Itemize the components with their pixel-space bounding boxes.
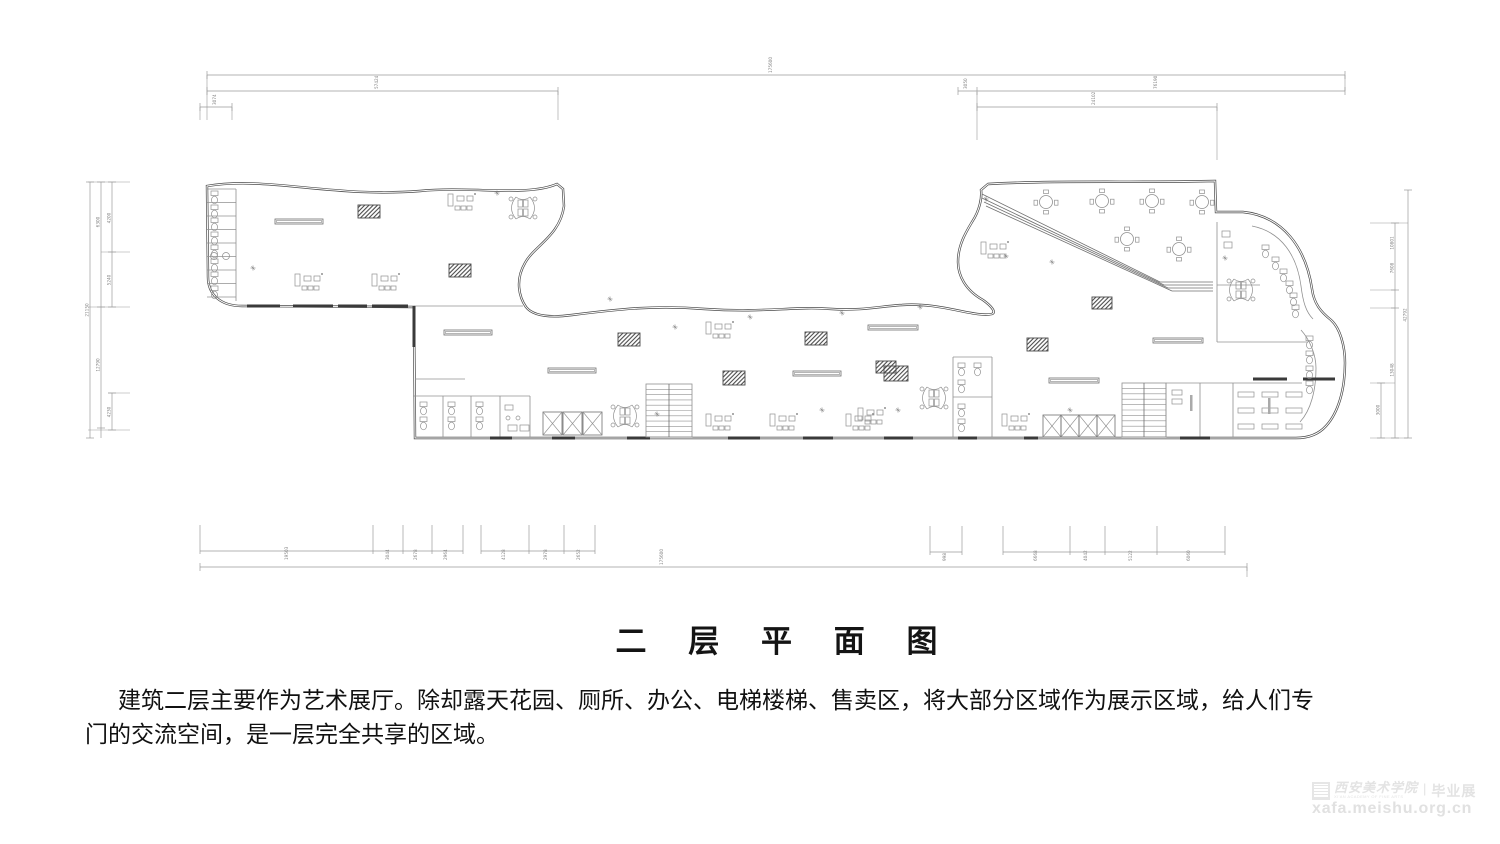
round-table [1121, 233, 1134, 246]
round-table [1040, 196, 1053, 209]
watermark-org-english: XI'AN ACADEMY OF FINE ARTS [1334, 795, 1418, 799]
dimension-label: 3050 [963, 78, 968, 89]
dimension-label: 3044 [385, 549, 390, 560]
floor-plan-svg: 1756005742430507619030742410219503304426… [0, 0, 1500, 600]
watermark-separator: | [1423, 781, 1426, 796]
hatched-column [1092, 297, 1112, 309]
dimension-label: 2964 [443, 549, 448, 560]
watermark: 西安美术学院 XI'AN ACADEMY OF FINE ARTS | 毕业展 … [1312, 781, 1487, 818]
description-line-1: 建筑二层主要作为艺术展厅。除却露天花园、厕所、办公、电梯楼梯、售卖区，将大部分区… [85, 684, 1437, 718]
display-bench [1153, 338, 1203, 343]
display-bench [868, 325, 918, 330]
dimension-label: 19503 [284, 546, 289, 560]
round-table [1146, 195, 1159, 208]
dimension-label: 2678 [413, 549, 418, 560]
floor-plan-area: 1756005742430507619030742410219503304426… [0, 0, 1500, 600]
dimension-label: 6060 [1186, 550, 1191, 561]
watermark-suffix: 毕业展 [1431, 781, 1476, 801]
dimension-label: 10801 [1390, 236, 1395, 250]
hatched-column [884, 366, 908, 381]
dimension-label: 4230 [107, 406, 112, 417]
hatched-column [618, 333, 640, 346]
watermark-url: xafa.meishu.org.cn [1312, 800, 1487, 818]
dimension-label: 7608 [1390, 262, 1395, 273]
dimension-label: 13048 [1390, 363, 1395, 377]
xafa-logo-icon [1312, 782, 1330, 800]
description-line-2: 门的交流空间，是一层完全共享的区域。 [85, 718, 1437, 752]
round-table [1096, 195, 1109, 208]
round-table [1196, 196, 1209, 209]
hatched-column [358, 205, 380, 218]
display-bench [275, 219, 323, 224]
display-bench [548, 368, 596, 373]
hatched-column [805, 332, 827, 345]
dimension-label: 5240 [107, 274, 112, 285]
display-bench [444, 330, 492, 335]
dimension-label: 6300 [96, 216, 101, 227]
dimension-label: 4042 [1083, 550, 1088, 561]
page-title: 二 层 平 面 图 [0, 616, 1500, 661]
display-bench [1049, 378, 1099, 383]
dimension-label: 12790 [96, 358, 101, 372]
dimension-label: 3074 [212, 94, 217, 105]
watermark-logo-row: 西安美术学院 XI'AN ACADEMY OF FINE ARTS | 毕业展 [1312, 781, 1487, 799]
watermark-org-block: 西安美术学院 XI'AN ACADEMY OF FINE ARTS [1334, 781, 1418, 799]
building-walls [207, 181, 1345, 438]
dimension-label: 24102 [1091, 91, 1096, 105]
dimension-label: 21150 [85, 303, 90, 317]
dimension-label: 2978 [543, 549, 548, 560]
dimension-label: 42792 [1403, 308, 1408, 322]
dimension-label: 76190 [1153, 75, 1158, 89]
page-root: 1756005742430507619030742410219503304426… [0, 0, 1500, 844]
dimension-label: 175600 [659, 549, 664, 565]
room-label-text [1268, 398, 1271, 414]
dimension-label: 4200 [107, 212, 112, 223]
display-bench [793, 371, 841, 376]
hatched-column [723, 371, 745, 385]
hatched-column [1027, 338, 1048, 351]
dimension-label: 175600 [768, 57, 773, 73]
dimension-label: 2652 [576, 549, 581, 560]
description-paragraph: 建筑二层主要作为艺术展厅。除却露天花园、厕所、办公、电梯楼梯、售卖区，将大部分区… [85, 684, 1437, 752]
dimension-label: 3000 [1376, 404, 1381, 415]
room-label-text [1190, 395, 1193, 411]
plant-marker [608, 297, 613, 302]
hatched-column [449, 264, 471, 277]
dimension-label: 998 [942, 553, 947, 561]
dimension-label: 4128 [501, 549, 506, 560]
round-table [1173, 243, 1186, 256]
dimension-label: 57424 [374, 75, 379, 89]
dimension-label: 6668 [1033, 550, 1038, 561]
dimension-label: 5122 [1128, 550, 1133, 561]
watermark-org-name: 西安美术学院 [1334, 781, 1418, 794]
